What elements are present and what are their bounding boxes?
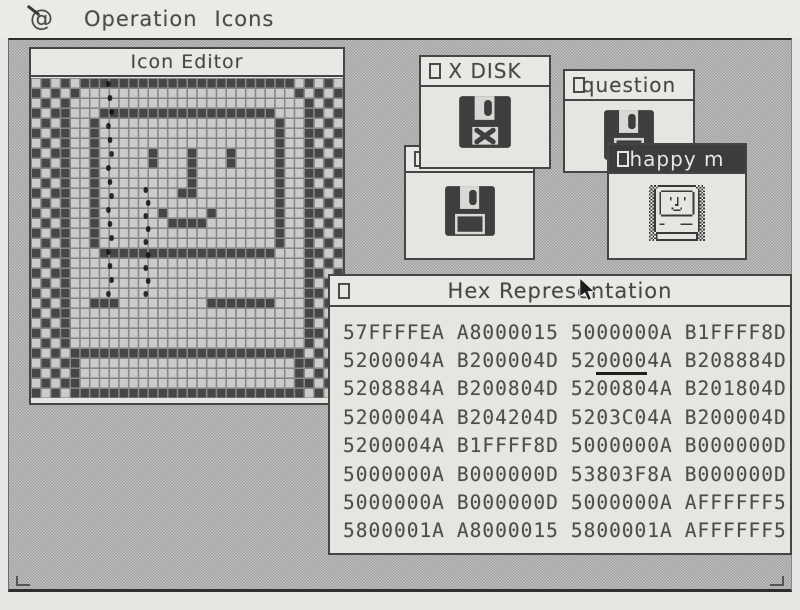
hex-value: 5200804A (571, 377, 673, 400)
question-title: question (582, 73, 676, 97)
hex-row: 57FFFFEAA80000155000000AB1FFFF8D (343, 318, 790, 346)
hex-title: Hex Representation (448, 279, 673, 303)
hex-representation-window: Hex Representation 57FFFFEAA800001550000… (328, 274, 792, 555)
close-box-icon[interactable] (338, 283, 350, 299)
x-disk-titlebar[interactable]: X DISK (421, 57, 549, 87)
hex-row: 5200004AB1FFFF8D5000000AB000000D (343, 432, 790, 460)
hex-value: 5000000A (571, 434, 673, 457)
hex-value: 53803F8A (571, 463, 673, 486)
hex-value: 5800001A (571, 519, 673, 542)
desktop: Icon Editor X DISK (8, 38, 792, 592)
close-box-icon[interactable] (429, 63, 441, 79)
hex-value: 5200004A (343, 349, 445, 372)
happy-m-window: happy m (607, 143, 747, 260)
hex-row: 5208884AB200804D5200804AB201804D (343, 375, 790, 403)
hex-value: 57FFFFEA (343, 321, 445, 344)
menu-operation[interactable]: Operation (84, 7, 198, 31)
hex-value: B1FFFF8D (457, 434, 559, 457)
hex-value: B1FFFF8D (685, 321, 787, 344)
hex-value: B000000D (457, 463, 559, 486)
scanned-screenshot-page: @ Operation Icons Icon Editor (0, 0, 800, 610)
hex-value: AFFFFFF5 (685, 519, 787, 542)
floppy-disk-icon[interactable] (443, 184, 497, 238)
hex-value: B204204D (457, 406, 559, 429)
menu-icons[interactable]: Icons (215, 7, 275, 31)
hex-row: 5200004AB200004D5200004AB208884D (343, 346, 790, 374)
icon-editor-window: Icon Editor (29, 47, 345, 405)
hex-value: 5800001A (343, 519, 445, 542)
hex-value: B000000D (685, 434, 787, 457)
hex-value: B200804D (457, 377, 559, 400)
hex-value: A8000015 (457, 321, 559, 344)
hex-value: AFFFFFF5 (685, 491, 787, 514)
hex-value: 5203C04A (571, 406, 673, 429)
hex-value: B000000D (685, 463, 787, 486)
scan-crop-mark (770, 576, 784, 586)
hex-underline-mark: 0000 (596, 349, 647, 375)
hex-value: 5200004A (571, 349, 673, 372)
hex-row: 5000000AB000000D5000000AAFFFFFF5 (343, 488, 790, 516)
hex-value: 5200004A (343, 406, 445, 429)
happy-mac-icon[interactable] (649, 185, 705, 241)
mouse-cursor-icon (579, 278, 596, 301)
question-titlebar[interactable]: question (565, 71, 693, 101)
close-box-icon[interactable] (617, 151, 629, 167)
hex-data-area: 57FFFFEAA80000155000000AB1FFFF8D5200004A… (330, 307, 790, 545)
happy-m-titlebar[interactable]: happy m (609, 145, 745, 174)
icon-pixel-grid[interactable] (31, 78, 343, 398)
hex-value: B000000D (457, 491, 559, 514)
hex-titlebar[interactable]: Hex Representation (330, 276, 790, 307)
x-disk-title: X DISK (448, 59, 521, 83)
x-disk-window: X DISK (419, 55, 551, 169)
icon-editor-title: Icon Editor (131, 51, 244, 73)
close-box-icon[interactable] (573, 77, 585, 93)
hex-value: 5000000A (343, 463, 445, 486)
hex-value: B200004D (457, 349, 559, 372)
hex-value: B201804D (685, 377, 787, 400)
menu-bar: @ Operation Icons (0, 0, 800, 38)
hex-row: 5200004AB204204D5203C04AB200004D (343, 403, 790, 431)
hex-row: 5800001AA80000155800001AAFFFFFF5 (343, 517, 790, 545)
hex-value: 5000000A (571, 491, 673, 514)
hex-value: B208884D (685, 349, 787, 372)
scan-crop-mark (16, 576, 30, 586)
hex-value: A8000015 (457, 519, 559, 542)
hex-value: 5208884A (343, 377, 445, 400)
icon-editor-titlebar[interactable]: Icon Editor (31, 49, 343, 77)
hex-value: 5200004A (343, 434, 445, 457)
hex-row: 5000000AB000000D53803F8AB000000D (343, 460, 790, 488)
floppy-disk-x-icon[interactable] (457, 94, 513, 150)
happy-m-title: happy m (630, 147, 725, 171)
hex-value: B200004D (685, 406, 787, 429)
hex-value: 5000000A (571, 321, 673, 344)
hex-value: 5000000A (343, 491, 445, 514)
